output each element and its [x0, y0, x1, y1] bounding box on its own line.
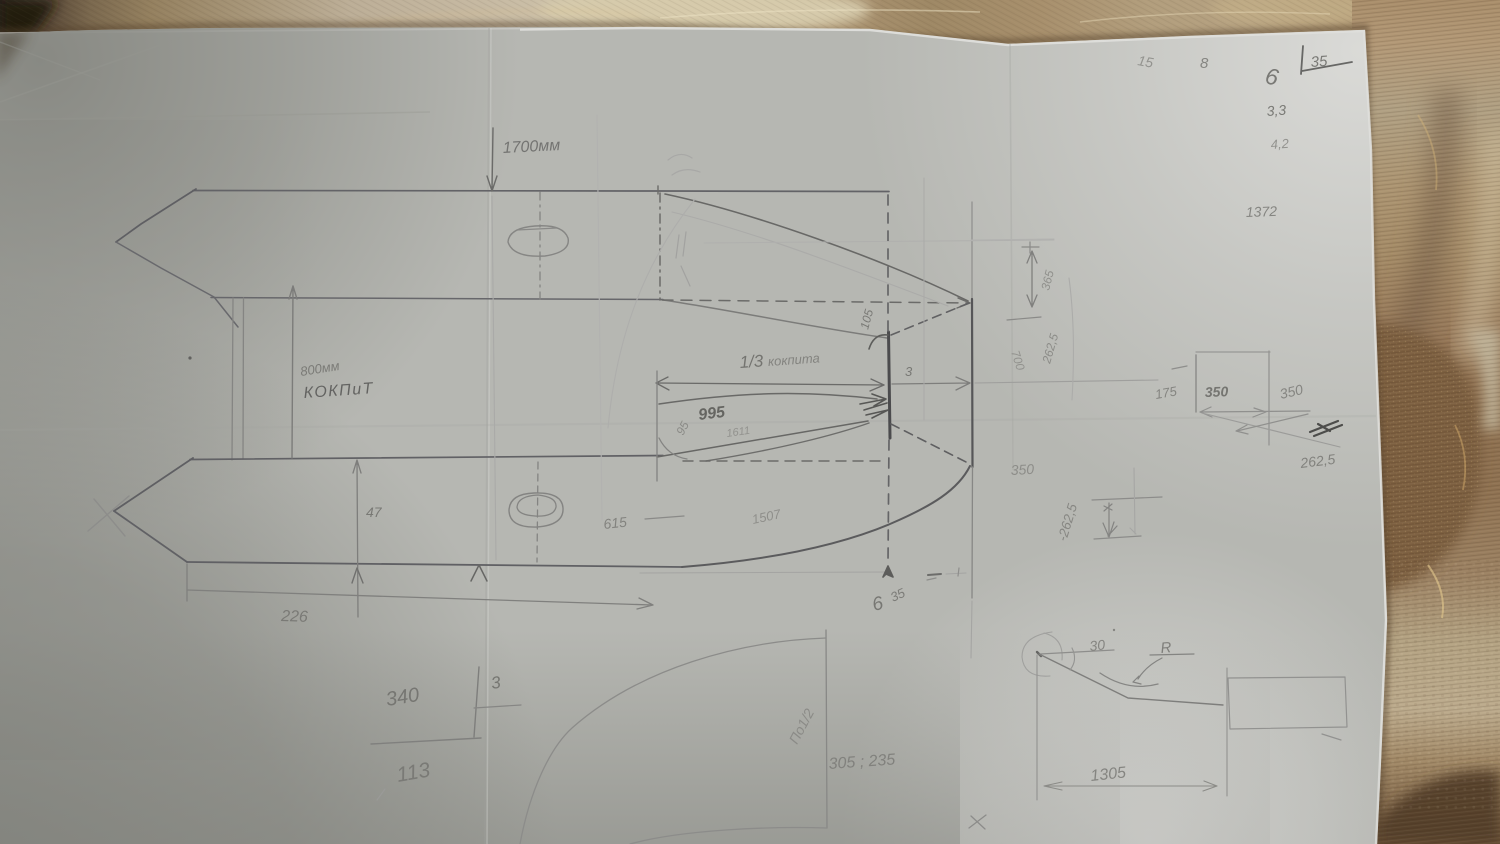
- svg-text:350: 350: [1205, 383, 1229, 400]
- svg-text:47: 47: [366, 504, 383, 520]
- svg-text:226: 226: [280, 608, 308, 626]
- svg-text:3,3: 3,3: [1266, 102, 1287, 119]
- svg-text:30: 30: [1089, 636, 1106, 654]
- svg-text:8: 8: [1200, 55, 1209, 72]
- svg-text:350: 350: [1010, 461, 1034, 478]
- svg-text:3: 3: [905, 364, 913, 379]
- svg-text:15: 15: [1136, 52, 1154, 70]
- svg-text:615: 615: [603, 514, 628, 532]
- svg-text:1700мм: 1700мм: [502, 137, 560, 157]
- svg-text:35: 35: [1310, 53, 1328, 71]
- svg-text:R: R: [1160, 639, 1172, 657]
- svg-text:995: 995: [697, 404, 727, 424]
- svg-text:4,2: 4,2: [1270, 136, 1290, 152]
- svg-text:1372: 1372: [1246, 203, 1278, 220]
